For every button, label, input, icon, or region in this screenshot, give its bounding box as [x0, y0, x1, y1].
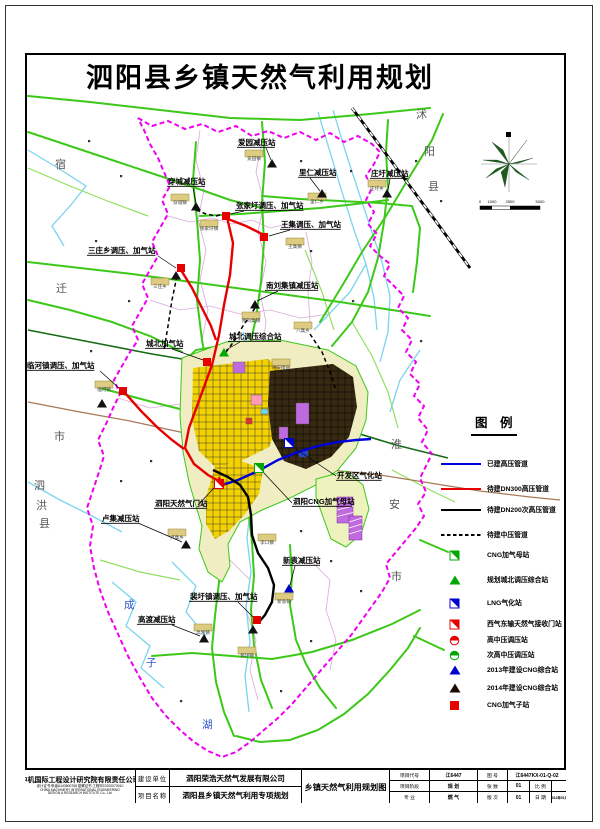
- legend-item: 已建高压管道: [439, 456, 528, 469]
- station-marker-square: [260, 233, 268, 241]
- region-name-char: 县: [39, 517, 50, 530]
- design-institute-cell: 中机国际工程设计研究院有限责任公司 设计证书:甲级A143800768 勘察证书…: [25, 770, 136, 803]
- sheets-value: 01: [508, 781, 530, 792]
- legend-item: 2014年建设CNG综合站: [439, 680, 558, 693]
- code-value: 江6447: [430, 770, 478, 781]
- city-zone: [296, 403, 309, 424]
- station-marker-square: [222, 212, 230, 220]
- road-line: [290, 545, 336, 708]
- legend-item-label: 规划城北调压综合站: [487, 574, 548, 584]
- station-label: 穿城减压站: [168, 176, 206, 186]
- station-label: 三庄乡调压、加气站: [88, 245, 156, 255]
- legend-item-label: 已建高压管道: [487, 458, 528, 468]
- north-marker: [506, 132, 511, 137]
- river-line: [390, 350, 420, 412]
- station-leader: [158, 256, 176, 268]
- region-name-char: 阳: [424, 145, 435, 158]
- minor-road: [100, 560, 180, 580]
- figure-number-label: 图 号: [478, 770, 508, 781]
- station-label: 城北调压综合站: [229, 331, 282, 341]
- station-marker-triangle: [267, 159, 277, 168]
- legend-symbol-sqh: [439, 617, 487, 629]
- owner-label: 建设单位: [136, 770, 170, 787]
- station-label: 南刘集镇减压站: [266, 280, 319, 290]
- figure-number-value: 江6447KX-01-Q-02: [508, 770, 566, 781]
- town-name: 王集镇: [288, 243, 302, 250]
- legend-item: 2013年建设CNG综合站: [439, 662, 558, 675]
- owner-value: 泗阳荣浩天然气发展有限公司: [170, 770, 302, 787]
- town-name: 三庄乡: [153, 283, 167, 290]
- station-label: 张家圩调压、加气站: [236, 200, 304, 210]
- station-marker-triangle: [284, 584, 294, 593]
- major-label: 专 业: [390, 792, 430, 803]
- legend-item-label: CNG加气子站: [487, 699, 529, 709]
- region-name-char: 洪: [36, 498, 47, 512]
- legend-symbol-circh: [439, 633, 487, 645]
- station-leader: [266, 148, 271, 160]
- station-label: 泗阳CNG加气母站: [293, 496, 355, 506]
- town-name: 里仁乡: [310, 198, 324, 204]
- town-name: 临河镇: [97, 386, 111, 393]
- town-name: 穿城镇: [173, 199, 187, 206]
- region-name-char: 淮: [391, 438, 402, 451]
- legend-item: 西气东输天然气接收门站: [439, 616, 562, 629]
- legend-item: 规划城北调压综合站: [439, 572, 548, 585]
- legend-item-label: 2013年建设CNG综合站: [487, 664, 558, 674]
- legend-item-label: 2014年建设CNG综合站: [487, 682, 558, 692]
- station-label: 城北加气站: [146, 338, 184, 348]
- station-marker-square: [177, 264, 185, 272]
- town-name: 八集乡: [296, 327, 310, 334]
- scale-tick-label: 2500: [506, 199, 516, 204]
- design-institute-en2: DESIGN & RESEARCH INSTITUTE Co., Ltd.: [48, 792, 113, 795]
- compass-blade: [509, 164, 529, 180]
- city-zone: [233, 362, 245, 373]
- station-label: 裴圩镇调压、加气站: [189, 591, 258, 601]
- legend-panel: 图 例 已建高压管道待建DN300高压管道待建DN200次高压管道待建中压管道C…: [437, 412, 573, 714]
- code-label: 项目代号: [390, 770, 430, 781]
- town-name: 裴圩镇: [240, 652, 254, 659]
- project-label: 项目名称: [136, 787, 170, 803]
- region-name-char: 泗: [34, 479, 45, 492]
- station-leader: [310, 178, 320, 191]
- title-block: 中机国际工程设计研究院有限责任公司 设计证书:甲级A143800768 勘察证书…: [25, 768, 566, 801]
- station-marker-square: [203, 358, 211, 366]
- stage-label: 项目阶段: [390, 781, 430, 792]
- region-name-char: 沭: [416, 108, 427, 121]
- legend-item: LNG气化站: [439, 595, 522, 608]
- stage-value: 规 划: [430, 781, 478, 792]
- region-name-char: 迁: [56, 282, 67, 295]
- scale-value: [552, 781, 566, 792]
- legend-symbol-sqh: [439, 596, 487, 608]
- lake-name-char: 湖: [202, 719, 213, 731]
- legend-symbol-tri: [439, 663, 487, 675]
- region-name-char: 市: [54, 429, 65, 443]
- scale-tick-label: 5000: [536, 199, 546, 204]
- region-name-char: 安: [389, 497, 400, 511]
- town-name: 南刘集镇: [242, 317, 261, 324]
- station-label: 卢集减压站: [102, 513, 140, 523]
- station-label: 高渡减压站: [138, 614, 176, 624]
- legend-item-label: LNG气化站: [487, 597, 522, 607]
- station-leader: [269, 230, 290, 236]
- legend-item: 次高中压调压站: [439, 647, 535, 660]
- scale-tick-label: 1000: [488, 199, 498, 204]
- sheets-label: 张 数: [478, 781, 508, 792]
- drawing-name: 乡镇天然气利用规划图: [302, 770, 390, 803]
- station-marker-triangle: [97, 399, 107, 408]
- legend-title: 图 例: [471, 412, 517, 436]
- legend-item: CNG加气母站: [439, 547, 529, 560]
- town-name: 新袁镇: [277, 598, 291, 605]
- legend-item: CNG加气子站: [439, 697, 529, 710]
- region-name-char: 宿: [55, 157, 66, 171]
- station-label: 庄圩减压站: [371, 168, 409, 178]
- lake-name-char: 子: [146, 657, 157, 669]
- town-name: 张家圩镇: [200, 225, 219, 232]
- station-label: 爱园减压站: [238, 137, 276, 147]
- date-value: 2013年01月: [552, 792, 566, 803]
- city-zone: [261, 409, 268, 414]
- compass-blade: [483, 160, 509, 164]
- legend-item-label: 高中压调压站: [487, 634, 528, 644]
- town-name: 爱园镇: [247, 155, 261, 162]
- legend-symbol-line: [439, 457, 487, 469]
- legend-symbol-sq: [439, 698, 487, 710]
- station-marker-triangle: [248, 625, 258, 634]
- legend-symbol-line: [439, 482, 487, 494]
- scale-label: 比 例: [530, 781, 552, 792]
- legend-item: 高中压调压站: [439, 632, 528, 645]
- station-label: 临河镇调压、加气站: [27, 360, 95, 370]
- city-zone: [279, 427, 288, 439]
- station-label: 里仁减压站: [299, 167, 337, 177]
- town-name: 庄圩乡: [370, 185, 384, 192]
- legend-symbol-tri: [439, 573, 487, 585]
- major-value: 燃 气: [430, 792, 478, 803]
- legend-symbol-sqh: [439, 548, 487, 560]
- road-line: [332, 120, 388, 346]
- scale-tick-label: 0: [479, 199, 482, 204]
- revision-value: 01: [508, 792, 530, 803]
- legend-symbol-circh: [439, 648, 487, 660]
- station-label: 王集调压、加气站: [281, 219, 341, 229]
- revision-label: 版 次: [478, 792, 508, 803]
- station-marker-triangle: [181, 540, 191, 549]
- planned-dn300-pipeline: [125, 393, 184, 449]
- road-line: [28, 96, 430, 120]
- legend-item-label: 西气东输天然气接收门站: [487, 618, 562, 628]
- legend-item-label: CNG加气母站: [487, 549, 529, 559]
- station-label: 新袁减压站: [283, 555, 321, 565]
- legend-item-label: 待建DN300高压管道: [487, 483, 549, 493]
- legend-item: 待建中压管道: [439, 527, 528, 540]
- station-label: 泗阳天然气门站: [155, 498, 208, 508]
- station-marker-triangle: [199, 634, 209, 643]
- station-marker-square: [119, 387, 127, 395]
- legend-symbol-tri: [439, 681, 487, 693]
- compass-rose: [481, 132, 537, 192]
- legend-item: 待建DN200次高压管道: [439, 502, 556, 515]
- town-name: 李口镇: [260, 539, 274, 546]
- station-marker-triangle: [171, 271, 181, 280]
- town-name: 来安街道: [272, 364, 291, 371]
- legend-item-label: 次高中压调压站: [487, 649, 535, 659]
- minor-road: [28, 168, 148, 216]
- legend-symbol-line: [439, 503, 487, 515]
- project-value: 泗阳县乡镇天然气利用专项规划: [170, 787, 302, 803]
- city-zone: [251, 395, 262, 405]
- region-name-char: 县: [428, 180, 439, 193]
- scale-bar: 0100025005000: [479, 199, 545, 210]
- lake-name-char: 成: [124, 599, 135, 611]
- legend-item-label: 待建中压管道: [487, 529, 528, 539]
- station-marker-triangle: [191, 202, 201, 211]
- road-line: [152, 610, 420, 659]
- legend-symbol-dash: [439, 528, 487, 540]
- legend-item-label: 待建DN200次高压管道: [487, 504, 556, 514]
- station-label: 开发区气化站: [337, 470, 382, 480]
- date-label: 日 期: [530, 792, 552, 803]
- river-line: [112, 582, 164, 688]
- region-name-char: 市: [391, 569, 402, 583]
- legend-item: 待建DN300高压管道: [439, 481, 549, 494]
- drawing-sheet: 泗阳县乡镇天然气利用规划 爱园镇穿城镇张家圩镇里仁乡庄圩乡王集镇三庄乡南刘集镇八…: [0, 0, 600, 829]
- city-zone: [246, 418, 252, 424]
- station-marker-square: [253, 616, 261, 624]
